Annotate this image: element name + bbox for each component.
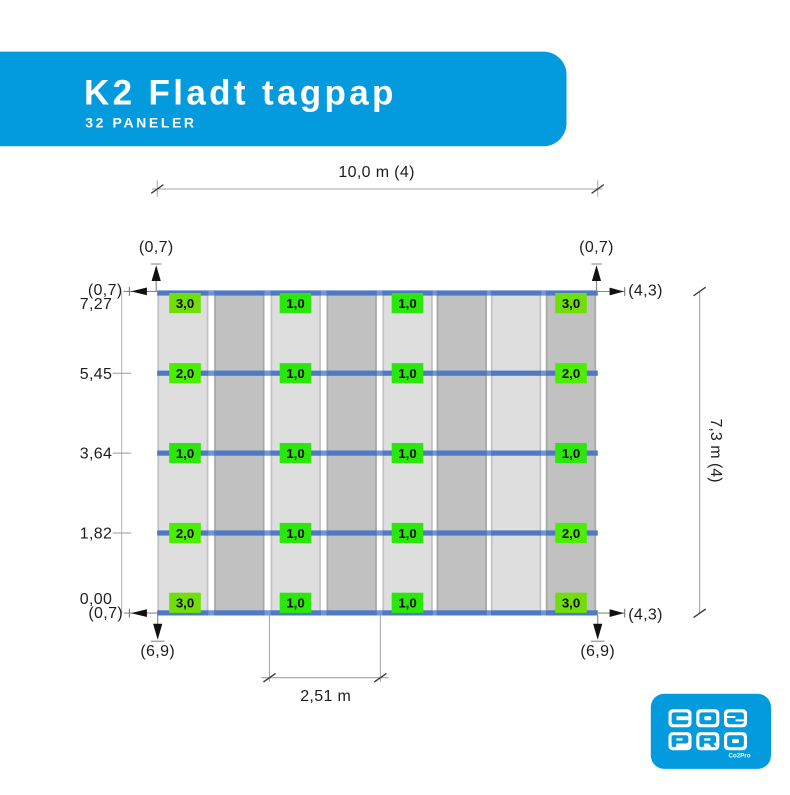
svg-text:3,0: 3,0 <box>562 296 580 311</box>
svg-text:1,0: 1,0 <box>398 296 416 311</box>
svg-text:1,0: 1,0 <box>286 526 304 541</box>
svg-text:1,0: 1,0 <box>286 296 304 311</box>
svg-text:1,0: 1,0 <box>398 366 416 381</box>
svg-text:1,0: 1,0 <box>398 446 416 461</box>
svg-text:3,64: 3,64 <box>80 446 113 463</box>
svg-text:2,0: 2,0 <box>562 366 580 381</box>
svg-text:(0,7): (0,7) <box>88 605 123 622</box>
svg-text:(6,9): (6,9) <box>140 643 175 660</box>
svg-text:10,0 m (4): 10,0 m (4) <box>338 164 414 181</box>
svg-text:2,0: 2,0 <box>176 526 194 541</box>
svg-text:1,82: 1,82 <box>80 526 113 543</box>
svg-text:3,0: 3,0 <box>176 296 194 311</box>
svg-text:1,0: 1,0 <box>286 596 304 611</box>
svg-text:(4,3): (4,3) <box>628 606 663 623</box>
svg-text:7,3 m (4): 7,3 m (4) <box>707 418 724 482</box>
svg-text:Co2Pro: Co2Pro <box>728 753 750 760</box>
svg-text:3,0: 3,0 <box>176 596 194 611</box>
svg-text:1,0: 1,0 <box>398 596 416 611</box>
svg-text:2,0: 2,0 <box>176 366 194 381</box>
svg-text:(0,7): (0,7) <box>139 239 174 256</box>
svg-text:3,0: 3,0 <box>562 596 580 611</box>
svg-text:(6,9): (6,9) <box>580 643 615 660</box>
svg-text:2,0: 2,0 <box>562 526 580 541</box>
svg-text:K2 Fladt tagpap: K2 Fladt tagpap <box>84 74 397 113</box>
svg-text:(0,7): (0,7) <box>88 282 123 299</box>
svg-text:(4,3): (4,3) <box>628 283 663 300</box>
svg-text:1,0: 1,0 <box>562 446 580 461</box>
svg-text:32 PANELER: 32 PANELER <box>85 115 196 131</box>
svg-text:(0,7): (0,7) <box>579 239 614 256</box>
svg-text:1,0: 1,0 <box>398 526 416 541</box>
svg-text:1,0: 1,0 <box>286 366 304 381</box>
svg-text:1,0: 1,0 <box>176 446 194 461</box>
svg-text:2,51 m: 2,51 m <box>300 688 351 705</box>
svg-text:1,0: 1,0 <box>286 446 304 461</box>
svg-text:5,45: 5,45 <box>80 366 113 383</box>
